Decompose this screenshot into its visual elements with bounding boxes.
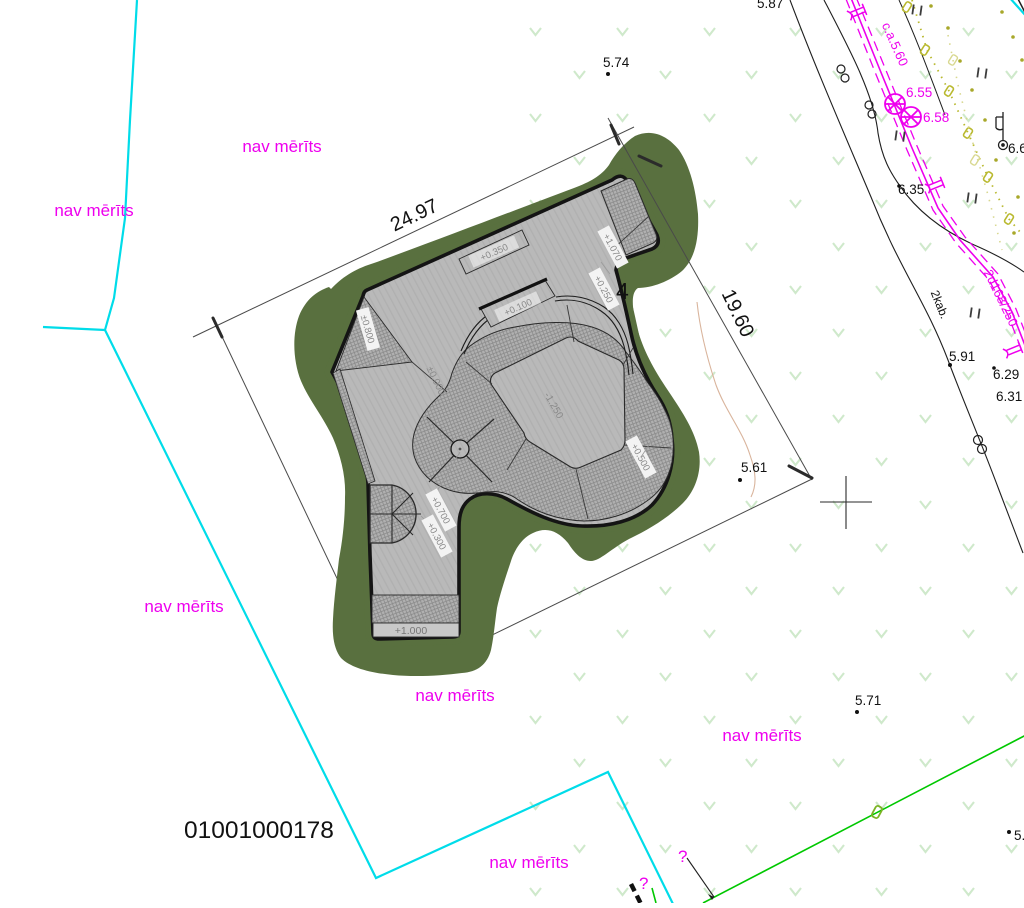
svg-text:5.74: 5.74 (603, 55, 630, 70)
svg-text:6.35: 6.35 (898, 182, 924, 197)
svg-text:5.91: 5.91 (949, 349, 975, 364)
svg-text:6.58: 6.58 (923, 110, 949, 125)
svg-text:6.61: 6.61 (1008, 141, 1024, 156)
svg-text:+1.000: +1.000 (395, 625, 428, 637)
svg-text:5.87: 5.87 (757, 0, 783, 11)
svg-text:01001000178: 01001000178 (184, 817, 334, 844)
svg-text:nav mērīts: nav mērīts (242, 137, 321, 156)
svg-text:nav mērīts: nav mērīts (415, 686, 494, 705)
svg-text:?: ? (678, 847, 687, 866)
svg-text:5.71: 5.71 (855, 693, 881, 708)
svg-text:5.6: 5.6 (1014, 828, 1024, 843)
svg-text:nav mērīts: nav mērīts (489, 853, 568, 872)
svg-text:5.61: 5.61 (741, 460, 767, 475)
svg-text:nav mērīts: nav mērīts (722, 726, 801, 745)
svg-text:6.29: 6.29 (993, 367, 1019, 382)
svg-text:nav mērīts: nav mērīts (144, 597, 223, 616)
svg-text:4: 4 (616, 278, 629, 304)
svg-text:6.55: 6.55 (906, 85, 932, 100)
svg-text:nav mērīts: nav mērīts (54, 201, 133, 220)
svg-text:6.31: 6.31 (996, 389, 1022, 404)
svg-text:?: ? (639, 874, 648, 893)
